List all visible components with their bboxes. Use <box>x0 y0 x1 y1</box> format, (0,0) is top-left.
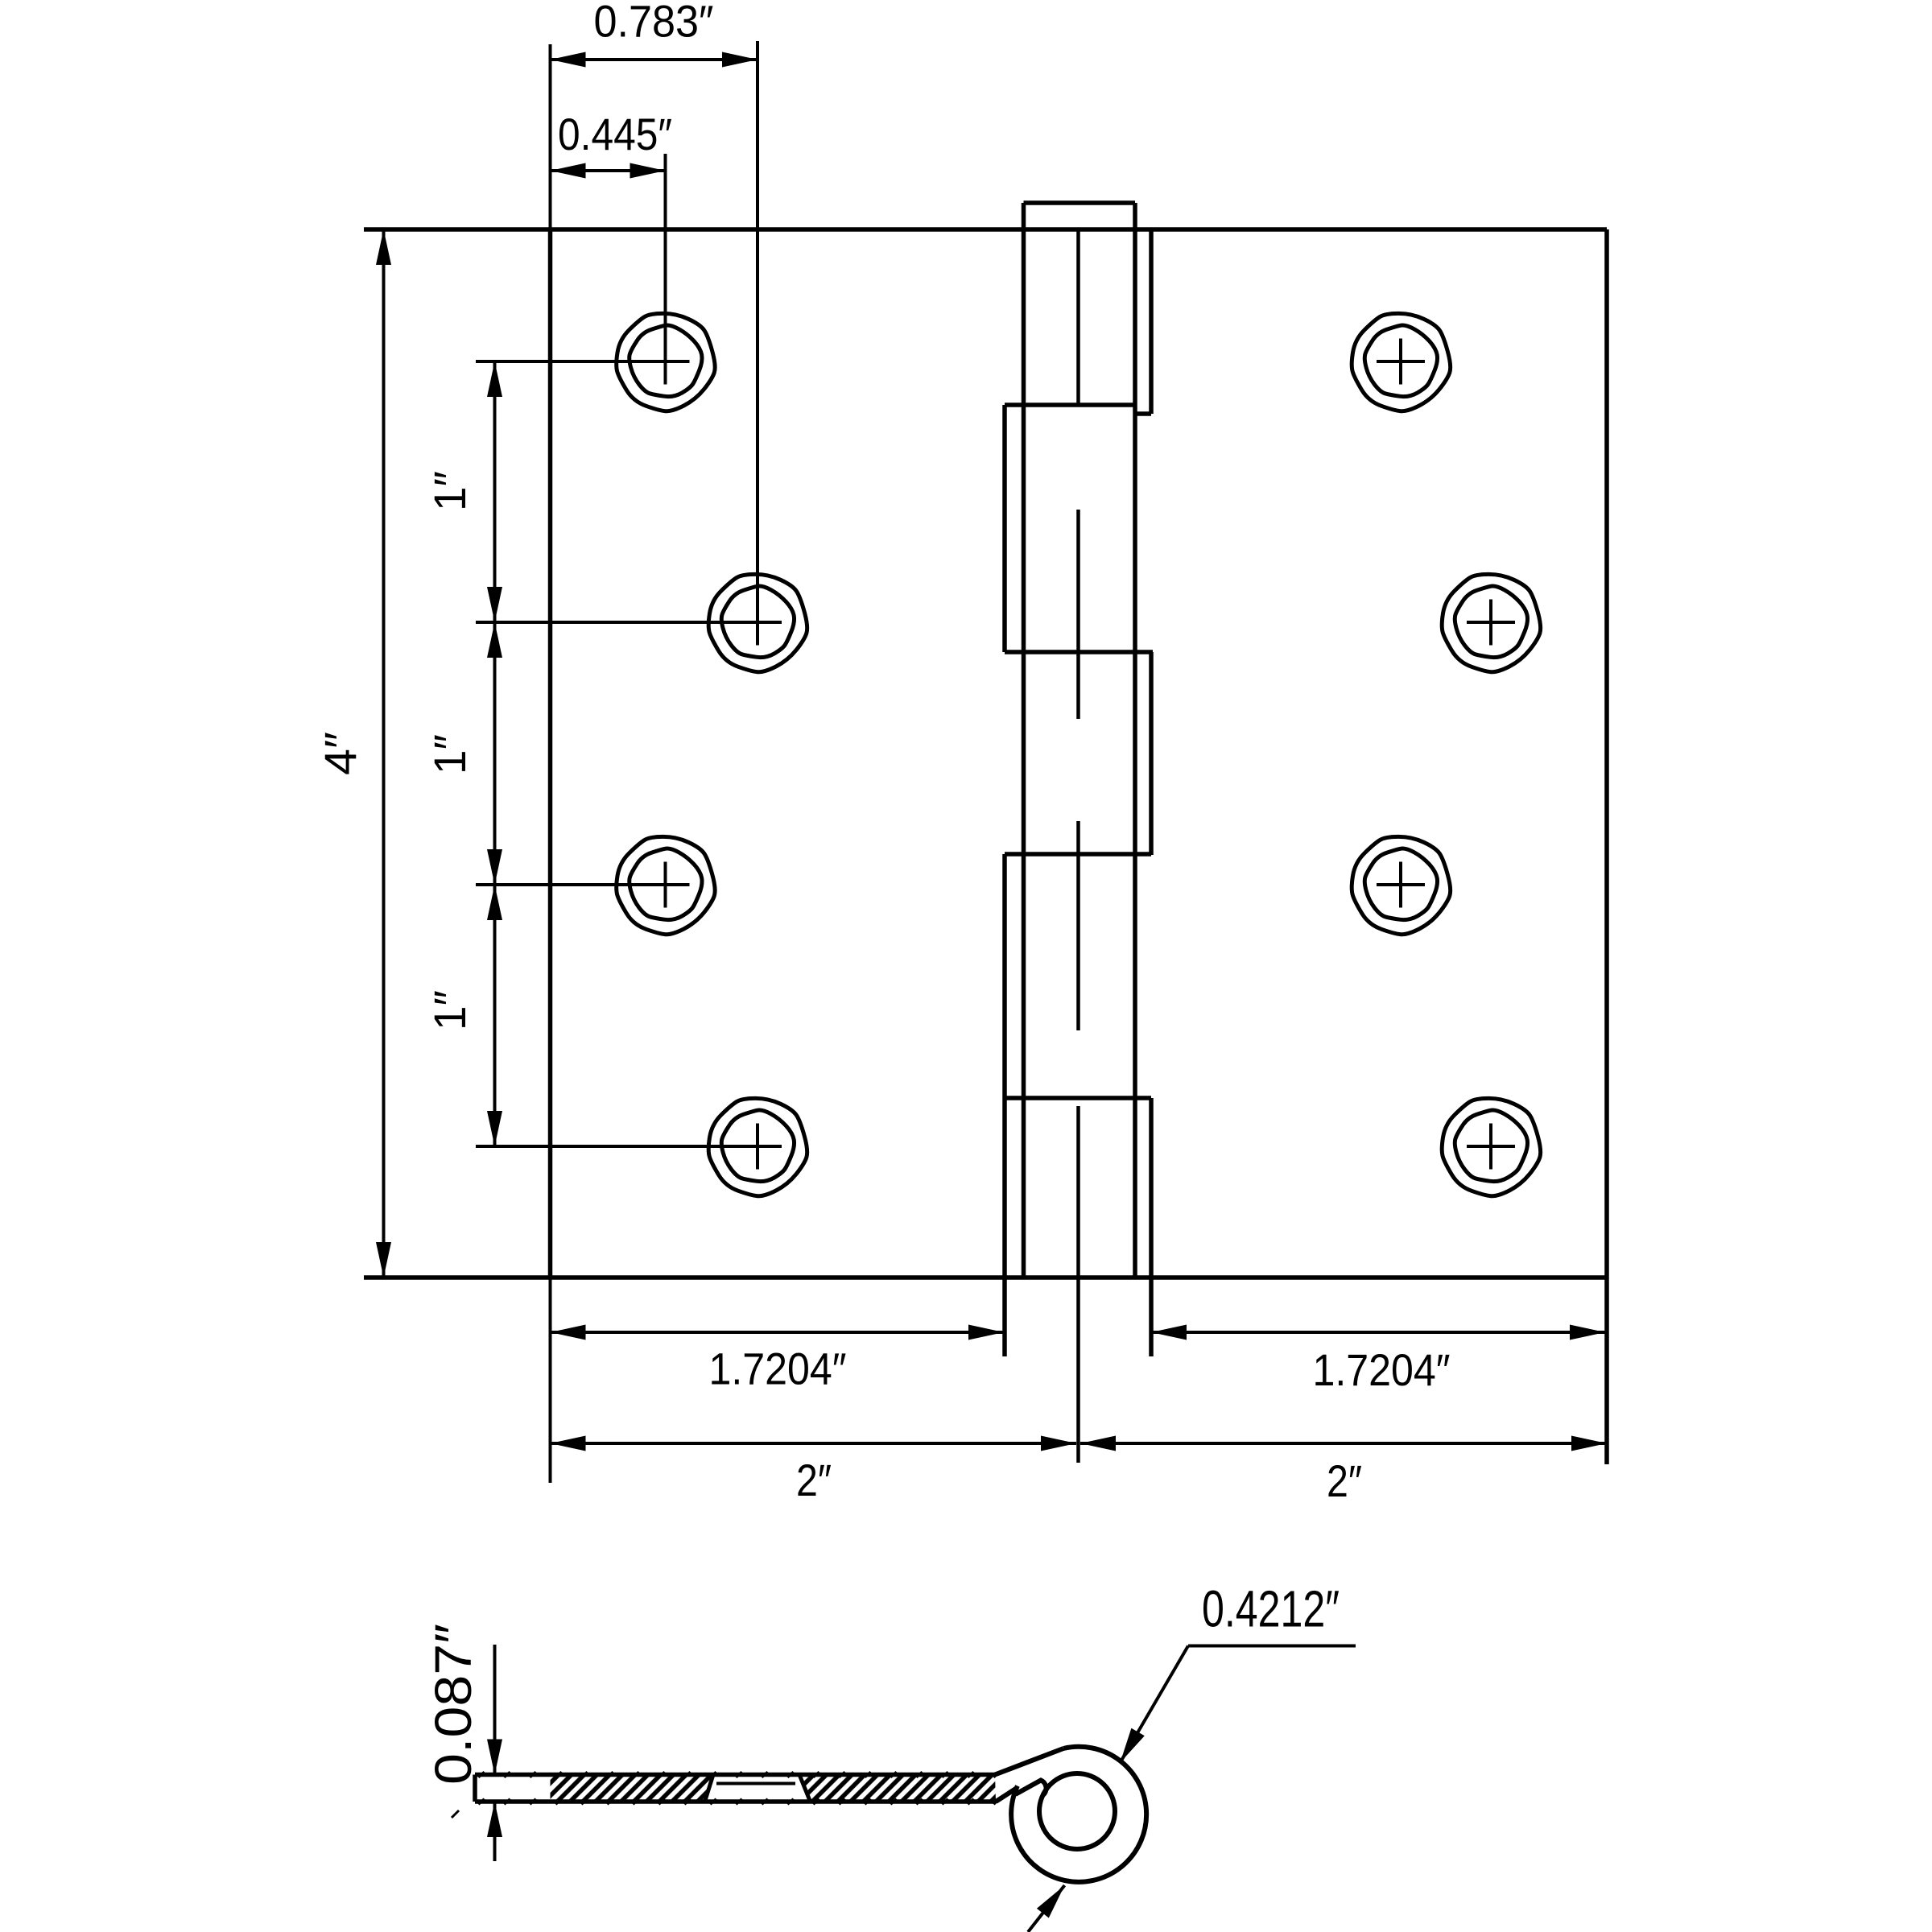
svg-text:2″: 2″ <box>1327 1455 1362 1506</box>
svg-text:0.087″: 0.087″ <box>424 1624 482 1785</box>
svg-text:1.7204″: 1.7204″ <box>1313 1344 1451 1395</box>
svg-text:1″: 1″ <box>424 471 475 511</box>
svg-text:4″: 4″ <box>315 732 365 775</box>
svg-text:2″: 2″ <box>796 1455 832 1505</box>
svg-text:1″: 1″ <box>424 734 475 774</box>
svg-text:0.783″: 0.783″ <box>594 0 714 47</box>
svg-text:0.4212″: 0.4212″ <box>1202 1580 1340 1638</box>
svg-text:1.7204″: 1.7204″ <box>709 1344 847 1394</box>
svg-text:1″: 1″ <box>424 990 475 1030</box>
svg-text:0.445″: 0.445″ <box>558 109 672 159</box>
